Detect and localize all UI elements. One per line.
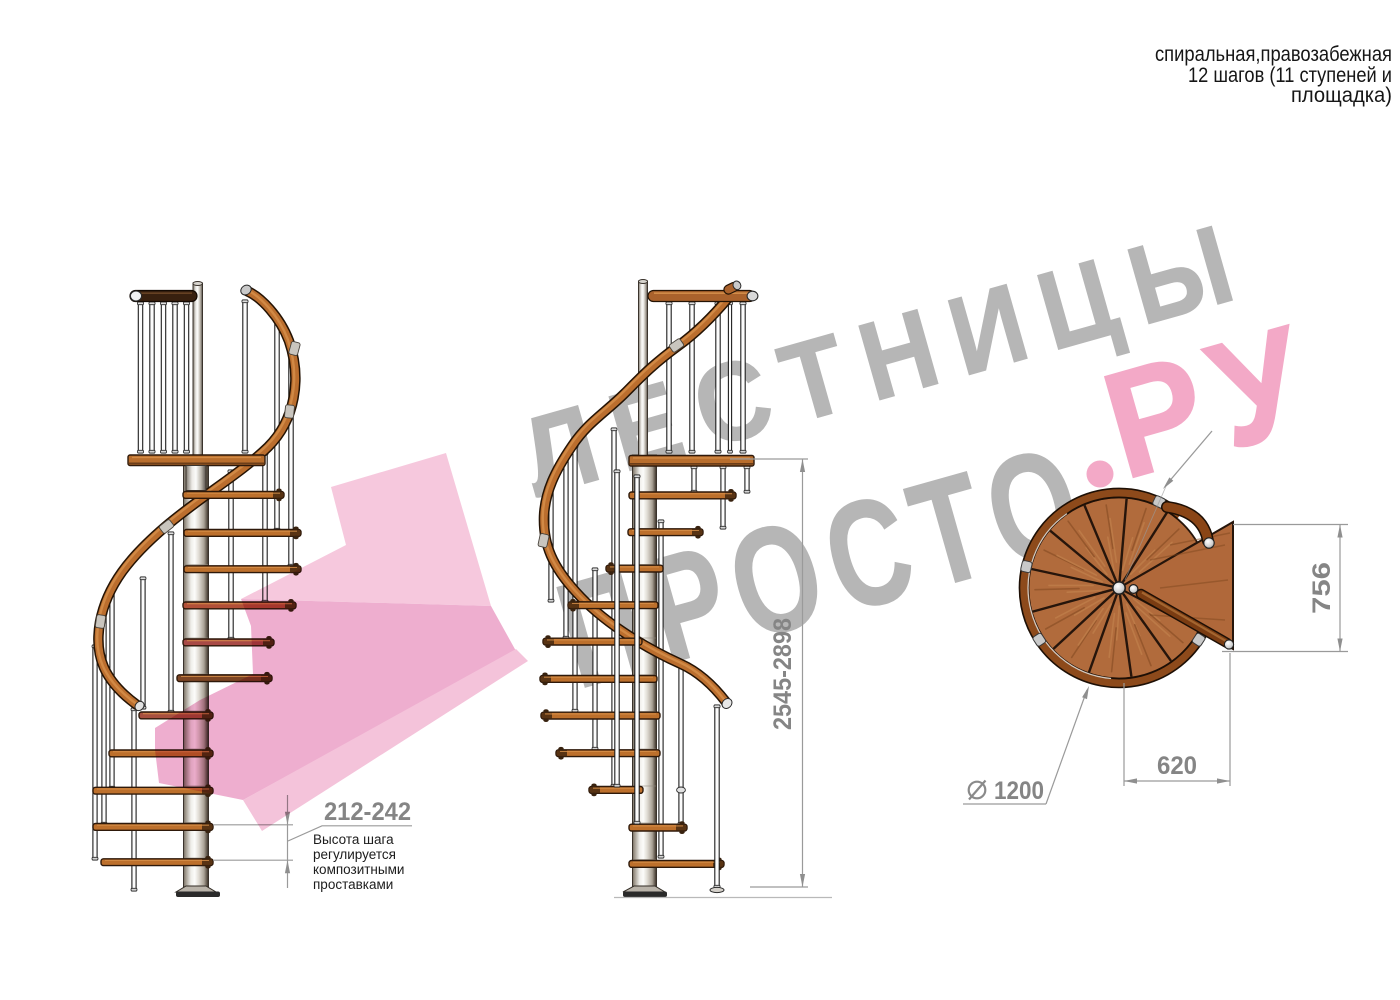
svg-text:2545-2898: 2545-2898	[769, 618, 797, 730]
svg-text:проставками: проставками	[313, 877, 393, 892]
svg-text:спиральная,правозабежная: спиральная,правозабежная	[1155, 43, 1392, 66]
svg-text:площадка): площадка)	[1291, 84, 1392, 107]
svg-text:1200: 1200	[994, 777, 1044, 805]
svg-text:620: 620	[1157, 752, 1197, 780]
svg-text:756: 756	[1308, 562, 1336, 614]
svg-text:Высота шага: Высота шага	[313, 832, 394, 847]
svg-text:композитными: композитными	[313, 862, 404, 877]
svg-text:212-242: 212-242	[324, 798, 411, 826]
svg-text:регулируется: регулируется	[313, 847, 396, 862]
